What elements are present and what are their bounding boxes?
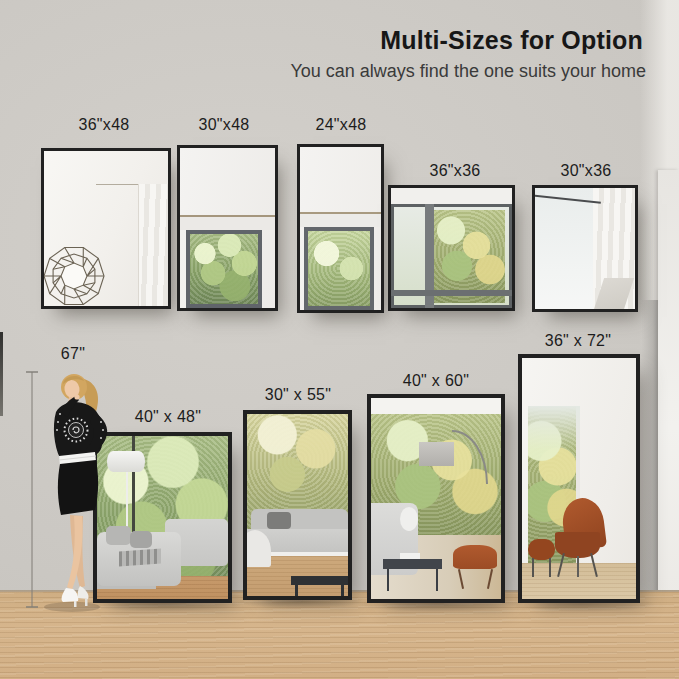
white-column [658,170,679,598]
page-title: Multi-Sizes for Option [380,26,643,55]
window-reflection [304,227,374,310]
coffee-table-leg [387,569,389,591]
window-sky [528,406,580,449]
ottoman-leg [549,558,551,577]
window-reflection [186,230,262,308]
size-label-30x55: 30" x 55" [265,386,332,404]
model-figure [30,370,118,614]
wall-corner-shadow [641,300,658,596]
floor-lamp-pole [126,470,128,529]
ceiling-reflection [371,398,501,414]
window-mullion [391,290,512,296]
curtain-reflection [138,184,168,306]
wall-mirror-24x48 [297,144,384,313]
floor-mirror-40x60 [367,394,505,603]
wall-mirror-30x36 [532,185,638,312]
coffee-table-top [291,576,348,585]
table-books [400,553,421,559]
product-image-canvas: Multi-Sizes for Option You can always fi… [0,0,679,679]
wall-mirror-36x36 [388,185,515,311]
size-label-40x60: 40" x 60" [403,372,470,390]
lamp-shade-reflection [419,442,454,466]
coffee-table-leg [341,585,344,596]
sofa-cushion [400,507,418,531]
size-label-24x48: 24"x48 [315,116,366,134]
model-height-label: 67" [61,345,85,363]
ottoman-leg [532,558,534,577]
left-edge-object [0,332,3,416]
size-label-30x36: 30"x36 [560,162,611,180]
wall-strip-reflection [180,217,275,230]
sunburst-mirror-reflection [41,243,110,309]
chair-leg [577,556,579,578]
throw-blanket [119,549,161,567]
size-label-36x48: 36"x48 [78,116,129,134]
page-subtitle: You can always find the one suits your h… [290,61,646,82]
wall-strip-reflection [300,214,381,227]
coffee-table-leg [436,569,438,591]
sofa-pillow [130,531,152,549]
wall-mirror-36x48 [41,148,171,309]
wall-mirror-30x48 [177,145,278,311]
floor-reflection [522,563,636,599]
size-label-40x48: 40" x 48" [135,408,202,426]
leather-bench-reflection [453,545,497,569]
size-label-36x72: 36" x 72" [545,332,612,350]
coffee-table-top [383,559,443,569]
floor-mirror-36x72 [518,354,640,603]
sky-reflection [535,188,593,309]
sofa-pillow [267,512,291,528]
coffee-table-leg [295,585,298,596]
size-label-36x36: 36"x36 [429,162,480,180]
floor-mirror-30x55 [243,410,352,600]
size-label-30x48: 30"x48 [198,116,249,134]
